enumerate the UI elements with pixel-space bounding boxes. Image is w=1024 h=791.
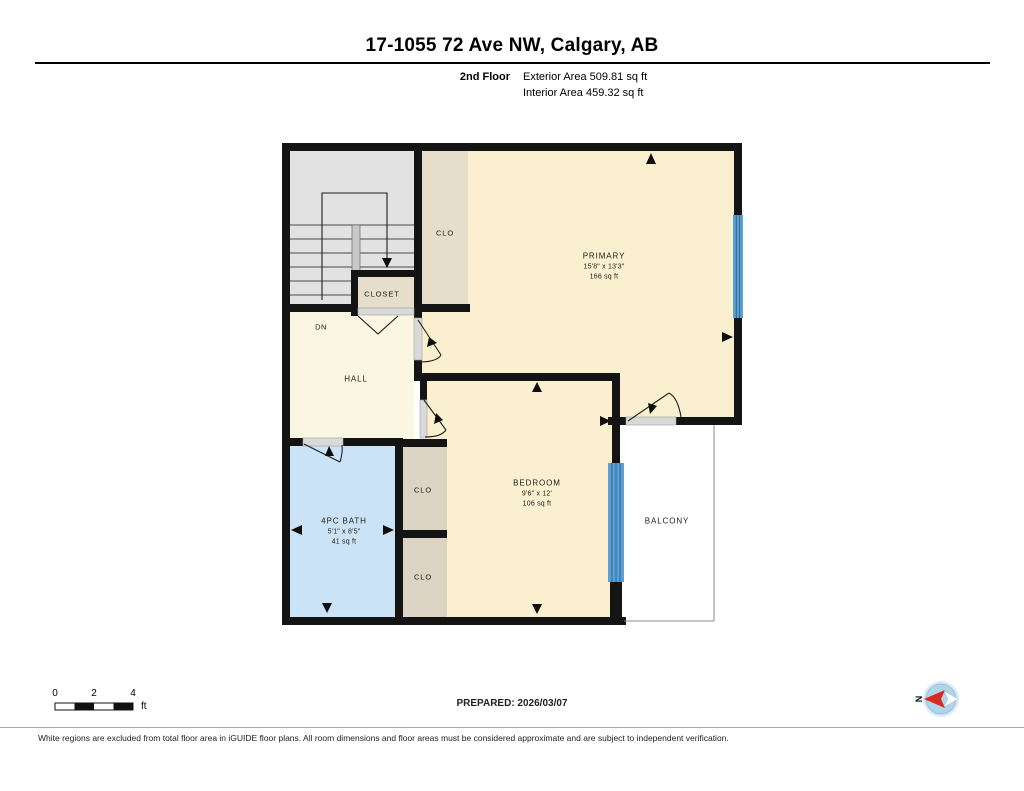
stair-divider <box>352 225 360 274</box>
label-stairs-dn: DN <box>315 323 327 332</box>
label-clo-upper: CLO <box>414 486 432 495</box>
label-primary: PRIMARY 15'8" x 13'3" 166 sq ft <box>583 251 626 283</box>
primary-name: PRIMARY <box>583 251 626 262</box>
label-clo-strip: CLO <box>436 229 454 238</box>
label-closet: CLOSET <box>364 290 399 299</box>
label-balcony: BALCONY <box>645 517 690 526</box>
label-bath: 4PC BATH 5'1" x 8'5" 41 sq ft <box>321 516 367 548</box>
prepared-date: PREPARED: 2026/03/07 <box>0 698 1024 709</box>
label-hall: HALL <box>344 375 368 384</box>
disclaimer-text: White regions are excluded from total fl… <box>38 733 729 743</box>
bath-name: 4PC BATH <box>321 516 367 527</box>
primary-dims: 15'8" x 13'3" <box>583 262 626 273</box>
bath-dims: 5'1" x 8'5" <box>321 527 367 538</box>
room-fills <box>290 151 734 621</box>
primary-area: 166 sq ft <box>583 272 626 283</box>
bedroom-dims: 9'6" x 12' <box>513 489 561 500</box>
bedroom-name: BEDROOM <box>513 478 561 489</box>
floorplan-page: 17-1055 72 Ave NW, Calgary, AB 2nd Floor… <box>0 0 1024 791</box>
floor-plan-drawing: N <box>0 0 1024 791</box>
label-bedroom: BEDROOM 9'6" x 12' 106 sq ft <box>513 478 561 510</box>
bath-area: 41 sq ft <box>321 537 367 548</box>
primary-window <box>733 215 743 318</box>
label-clo-lower: CLO <box>414 573 432 582</box>
bedroom-area: 106 sq ft <box>513 499 561 510</box>
